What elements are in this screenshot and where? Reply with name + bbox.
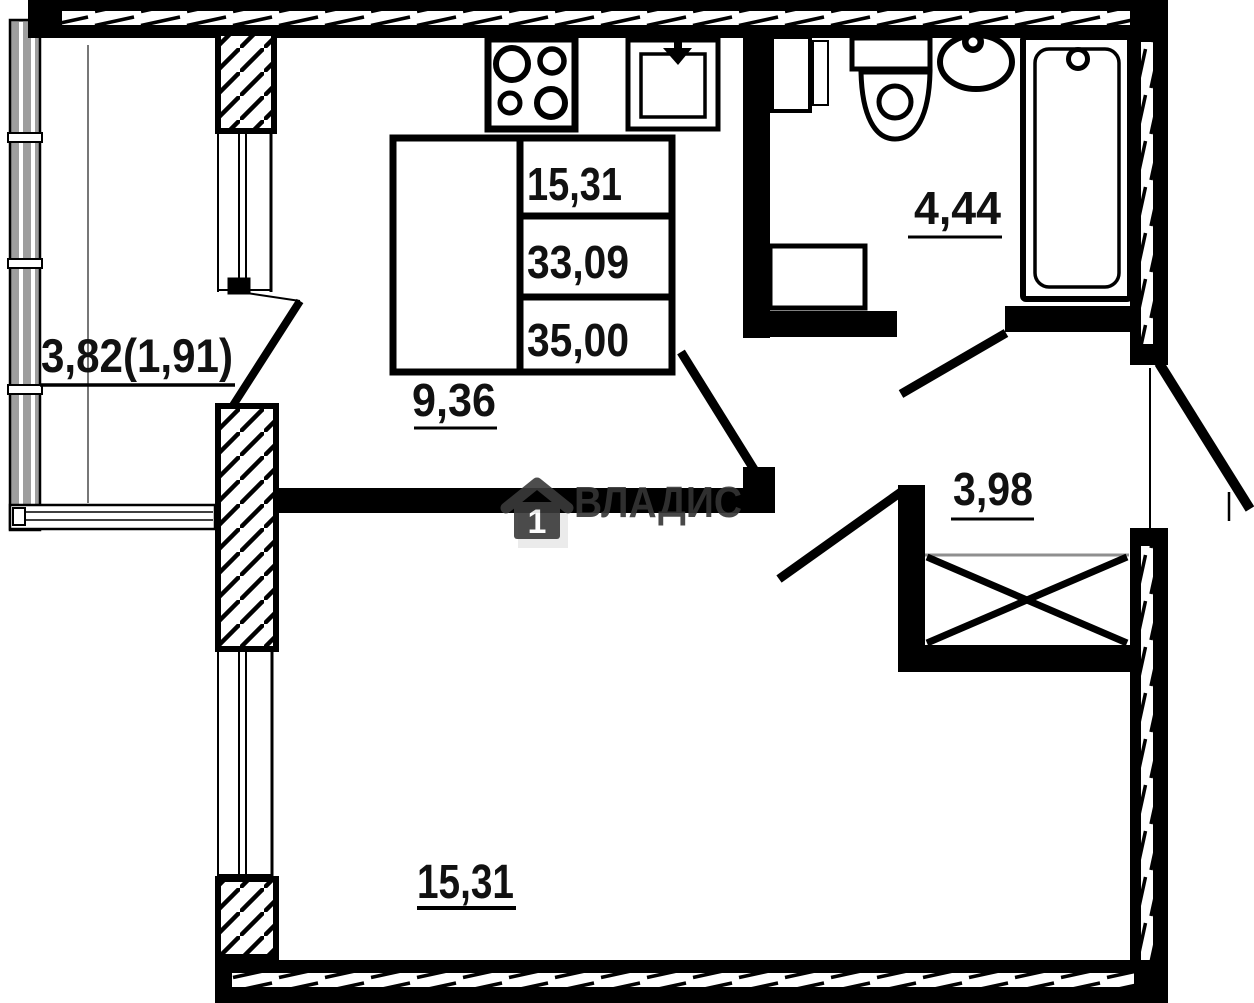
duct-shaft-bottom bbox=[770, 246, 865, 308]
wall-kitchen-door-stub bbox=[743, 467, 775, 507]
watermark-brand-text: ВЛАДИС bbox=[574, 478, 742, 527]
wall-pier-top bbox=[218, 33, 274, 131]
duct-shaft-top bbox=[772, 37, 828, 111]
table-row-value: 15,31 bbox=[527, 158, 622, 210]
area-table: 15,31 33,09 35,00 bbox=[393, 138, 672, 372]
washbasin-icon bbox=[940, 31, 1012, 89]
bathroom-area-label: 4,44 bbox=[914, 182, 1001, 234]
kitchen-sink-icon bbox=[628, 38, 718, 129]
watermark-logo-number: 1 bbox=[528, 503, 547, 541]
wall-wardrobe-bottom bbox=[898, 645, 1130, 672]
glazing-mullion bbox=[8, 385, 42, 394]
glazing-mullion bbox=[8, 259, 42, 268]
living-room-area-label: 15,31 bbox=[417, 856, 514, 909]
wall-kitchen-bathroom bbox=[743, 38, 770, 338]
wall-bottom-hatch bbox=[232, 973, 1134, 987]
wall-top-hatch bbox=[62, 11, 1134, 25]
wall-right-lower-hatch bbox=[1141, 546, 1153, 982]
hallway-area-label: 3,98 bbox=[953, 463, 1033, 515]
bathtub-icon bbox=[1023, 37, 1130, 299]
balcony-area-label: 3,82(1,91) bbox=[41, 329, 233, 382]
floor-plan-drawing: 15,31 33,09 35,00 3,82(1,91) 9,36 4,44 3… bbox=[0, 0, 1254, 1003]
stove-icon bbox=[488, 39, 575, 129]
wall-pier-middle bbox=[218, 406, 276, 649]
glazing-mullion bbox=[8, 133, 42, 142]
table-row-value: 33,09 bbox=[527, 236, 629, 288]
wall-wardrobe-side bbox=[898, 485, 925, 672]
wall-right-upper-hatch bbox=[1141, 42, 1153, 344]
wall-bathroom-bottom-left bbox=[743, 311, 897, 337]
wall-pier-bottom bbox=[218, 879, 276, 957]
floor-plan: 15,31 33,09 35,00 3,82(1,91) 9,36 4,44 3… bbox=[0, 0, 1254, 1003]
kitchen-area-label: 9,36 bbox=[412, 374, 496, 426]
table-row-value: 35,00 bbox=[527, 314, 629, 366]
wall-bathroom-bottom-right bbox=[1005, 306, 1130, 332]
